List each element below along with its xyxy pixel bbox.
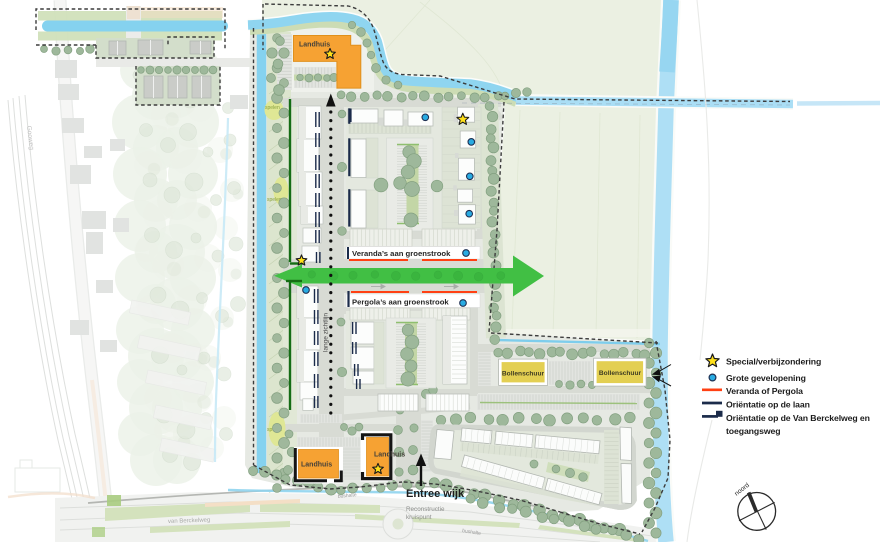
svg-text:Bollenschuur: Bollenschuur [502,371,545,378]
svg-text:kruispunt: kruispunt [406,514,432,521]
svg-text:spelen: spelen [265,105,280,111]
svg-text:Grote gevelopening: Grote gevelopening [726,373,806,383]
svg-text:Veranda of Pergola: Veranda of Pergola [726,386,803,396]
svg-text:Pergola’s aan groenstrook: Pergola’s aan groenstrook [352,298,449,307]
svg-text:Oriëntatie op de Van Berckelwe: Oriëntatie op de Van Berckelweg en [726,413,870,423]
svg-text:lange zichtlijn: lange zichtlijn [323,313,330,352]
svg-text:Entree wijk: Entree wijk [406,488,465,500]
svg-text:toegangsweg: toegangsweg [726,426,780,436]
svg-text:Special/verbijzondering: Special/verbijzondering [726,357,821,367]
svg-text:Landhuis: Landhuis [374,452,405,459]
svg-text:Bollenschuur: Bollenschuur [599,370,642,377]
svg-text:Reconstructie: Reconstructie [406,506,445,513]
svg-text:Landhuis: Landhuis [299,42,330,49]
svg-text:Landhuis: Landhuis [301,462,332,469]
svg-text:Veranda’s aan groenstrook: Veranda’s aan groenstrook [352,249,451,258]
svg-text:Oriëntatie op de laan: Oriëntatie op de laan [726,400,810,410]
